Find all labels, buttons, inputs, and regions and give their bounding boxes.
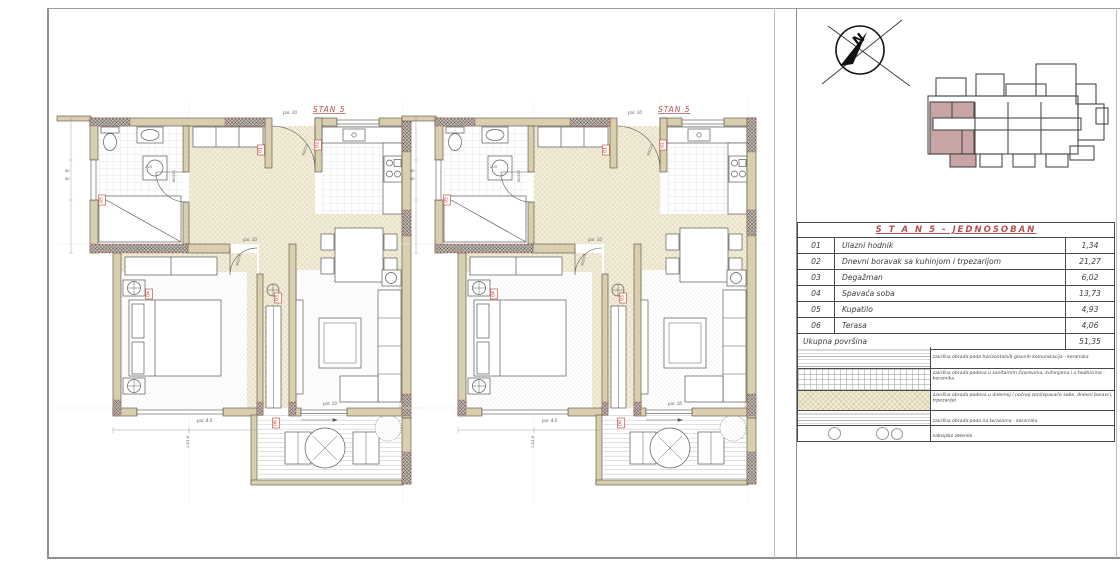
plan-annotation: 80 xyxy=(410,177,415,181)
legend-text: završna obrada poda horizontalnih glavni… xyxy=(931,347,1114,368)
plan-annotation: STAN 5 xyxy=(313,105,346,114)
room-name: Ulazni hodnik xyxy=(835,238,1066,253)
svg-text:02: 02 xyxy=(660,142,666,148)
floor-plan-left: 010203040506par. 1090/21080/21090/210par… xyxy=(55,98,421,508)
table-row: 02Dnevni boravak sa kuhinjom i trpezarij… xyxy=(798,254,1114,270)
legend-row: završna obrada poda na terasama - kerami… xyxy=(798,411,1114,426)
plan-annotation: 80/210 xyxy=(172,170,176,182)
room-name: Degažman xyxy=(835,270,1066,285)
row-number: 02 xyxy=(798,254,835,269)
room-area: 6,02 xyxy=(1066,270,1114,285)
plan-annotation: 2.10 xyxy=(145,165,152,169)
room-name: Spavaća soba xyxy=(835,286,1066,301)
room-marker-02: 02 xyxy=(315,140,322,150)
legend-swatch-circles xyxy=(798,426,931,441)
row-number: 06 xyxy=(798,318,835,333)
table-row: 05Kupatilo4,93 xyxy=(798,302,1114,318)
plan-annotation: 80 xyxy=(65,169,70,173)
plan-annotation: par. 10 xyxy=(667,401,682,406)
room-marker-02: 02 xyxy=(660,140,667,150)
site-key-plan xyxy=(918,56,1114,174)
svg-text:06: 06 xyxy=(618,420,624,426)
apartment-plan-svg: 010203040506par. 1090/21080/21090/210par… xyxy=(55,98,421,508)
table-row: 03Degažman6,02 xyxy=(798,270,1114,286)
room-marker-01: 01 xyxy=(603,145,610,155)
plan-annotation: STAN 5 xyxy=(658,105,691,114)
plan-annotation: 1.5/1.8 xyxy=(531,435,535,448)
room-marker-03: 03 xyxy=(620,293,627,303)
finishes-legend: završna obrada poda horizontalnih glavni… xyxy=(797,347,1115,442)
room-marker-01: 01 xyxy=(258,145,265,155)
legend-swatch-grid xyxy=(798,369,931,390)
plan-annotation: 80/210 xyxy=(517,170,521,182)
room-area: 21,27 xyxy=(1066,254,1114,269)
svg-text:01: 01 xyxy=(258,147,264,153)
legend-row: završna obrada poda horizontalnih glavni… xyxy=(798,347,1114,369)
svg-text:04: 04 xyxy=(146,291,152,297)
floor-plan-right: 010203040506par. 1090/21080/21090/210par… xyxy=(400,98,766,508)
areas-table: S T A N 5 - JEDNOSOBAN 01Ulazni hodnik1,… xyxy=(797,222,1115,350)
svg-text:06: 06 xyxy=(273,420,279,426)
table-row: 06Terasa4,06 xyxy=(798,318,1114,334)
row-number: 04 xyxy=(798,286,835,301)
room-marker-06: 06 xyxy=(618,418,625,428)
svg-text:04: 04 xyxy=(491,291,497,297)
svg-text:02: 02 xyxy=(315,142,321,148)
plan-annotation: 1.5/1.8 xyxy=(186,435,190,448)
room-marker-04: 04 xyxy=(491,289,498,299)
areas-table-header: S T A N 5 - JEDNOSOBAN xyxy=(798,223,1114,238)
plan-annotation: 80 xyxy=(65,177,70,181)
legend-swatch-cross xyxy=(798,391,931,410)
room-marker-05: 05 xyxy=(444,195,451,205)
frame-right-line xyxy=(1116,8,1117,558)
row-number: 05 xyxy=(798,302,835,317)
plan-annotation: par. 10 xyxy=(242,237,257,242)
room-marker-03: 03 xyxy=(275,293,282,303)
plan-annotation: par. 10 xyxy=(627,110,642,115)
room-name: Kupatilo xyxy=(835,302,1066,317)
room-marker-05: 05 xyxy=(99,195,106,205)
legend-text: završna obrada podova u sanitarnim čvoro… xyxy=(931,369,1114,390)
legend-swatch-hlines xyxy=(798,411,931,425)
room-area: 1,34 xyxy=(1066,238,1114,253)
title-panel: N xyxy=(796,8,1114,558)
room-area: 13,73 xyxy=(1066,286,1114,301)
table-row: 04Spavaća soba13,73 xyxy=(798,286,1114,302)
row-number: 03 xyxy=(798,270,835,285)
room-marker-04: 04 xyxy=(146,289,153,299)
legend-text: saksijsko zelenilo xyxy=(931,426,1114,441)
plan-annotation: par. 4.0 xyxy=(196,418,213,423)
section-divider xyxy=(774,8,775,558)
svg-text:05: 05 xyxy=(99,197,105,203)
legend-row: završna obrada podova u sanitarnim čvoro… xyxy=(798,369,1114,391)
legend-row: saksijsko zelenilo xyxy=(798,426,1114,441)
svg-text:05: 05 xyxy=(444,197,450,203)
svg-text:03: 03 xyxy=(275,295,281,301)
legend-text: završna obrada poda na terasama - kerami… xyxy=(931,411,1114,425)
legend-text: završna obrada podova u dnevnoj i noćnoj… xyxy=(931,391,1114,410)
svg-text:01: 01 xyxy=(603,147,609,153)
table-row: 01Ulazni hodnik1,34 xyxy=(798,238,1114,254)
north-arrow-icon: N xyxy=(810,14,920,92)
drawing-sheet: 010203040506par. 1090/21080/21090/210par… xyxy=(0,0,1120,569)
room-marker-06: 06 xyxy=(273,418,280,428)
plan-annotation: par. 10 xyxy=(587,237,602,242)
plan-annotation: par. 10 xyxy=(282,110,297,115)
room-name: Dnevni boravak sa kuhinjom i trpezarijom xyxy=(835,254,1066,269)
plan-annotation: par. 10 xyxy=(322,401,337,406)
row-number: 01 xyxy=(798,238,835,253)
legend-row: završna obrada podova u dnevnoj i noćnoj… xyxy=(798,391,1114,411)
svg-text:03: 03 xyxy=(620,295,626,301)
apartment-plan-svg: 010203040506par. 1090/21080/21090/210par… xyxy=(400,98,766,508)
svg-text:N: N xyxy=(850,31,868,50)
room-name: Terasa xyxy=(835,318,1066,333)
plan-annotation: 2.10 xyxy=(490,165,497,169)
plan-annotation: par. 4.0 xyxy=(541,418,558,423)
frame-left-line xyxy=(47,8,49,558)
room-area: 4,93 xyxy=(1066,302,1114,317)
legend-swatch-hlines xyxy=(798,347,931,368)
room-area: 4,06 xyxy=(1066,318,1114,333)
plan-annotation: 80 xyxy=(410,169,415,173)
